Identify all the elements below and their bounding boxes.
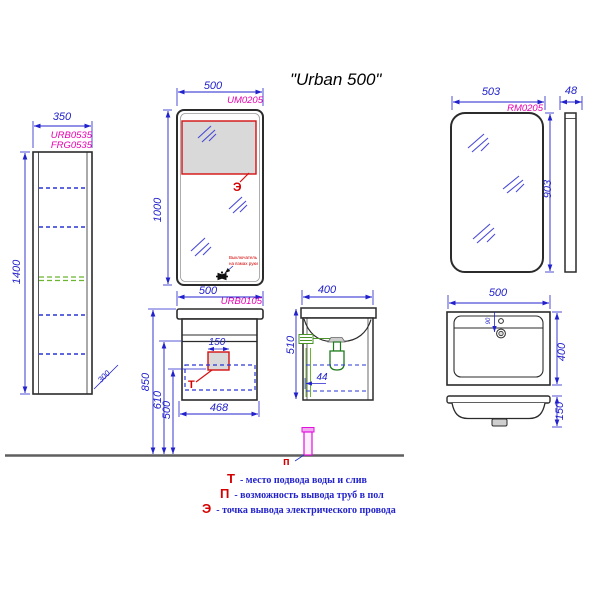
mirror-glass: [451, 113, 543, 272]
dim-side-height: 510: [285, 315, 297, 375]
water-supply-marker: Т: [188, 379, 195, 391]
dim-round-mirror-depth: 48: [556, 85, 586, 97]
sensor-note-line1: Выключатель: [229, 255, 257, 260]
dim-basin-depth: 400: [556, 322, 568, 382]
basin-top-outline: [177, 309, 263, 319]
dim-mirror-height: 1000: [152, 180, 164, 240]
round-mirror-drawing: [451, 96, 582, 272]
dim-side-pipe-offset: 44: [311, 372, 333, 383]
light-panel: [182, 121, 256, 174]
legend-pipes-symbol: П: [220, 486, 229, 501]
sensor-note-line2: на взмах руки: [229, 261, 258, 266]
legend-water-symbol: Т: [227, 471, 235, 486]
dim-basin-faucet-offset: 90: [486, 306, 492, 336]
dim-round-mirror-width: 503: [471, 86, 511, 98]
legend-electric: Э- точка вывода электрического провода: [202, 500, 396, 518]
dim-vanity-body-width: 468: [199, 402, 239, 414]
dim-basin-apron-height: 150: [554, 381, 566, 441]
legend-electric-symbol: Э: [202, 501, 211, 516]
dim-vanity-height-total: 850: [140, 352, 152, 412]
code-tall-cabinet-2: FRG0535: [42, 140, 92, 151]
mirror-side-profile: [565, 113, 576, 272]
vanity-side-drawing: [296, 290, 376, 400]
technical-drawing-sheet: "Urban 500" 350 1400 300 URB0535 FRG0535…: [0, 0, 600, 600]
basin-drawing: [447, 295, 562, 427]
overflow-hole: [499, 319, 504, 324]
legend-electric-text: - точка вывода электрического провода: [216, 505, 395, 516]
dim-cabinet-width: 350: [42, 111, 82, 123]
floor-pipe-marker: п: [283, 456, 290, 468]
dim-round-mirror-height: 903: [542, 159, 554, 219]
sheet-title: "Urban 500": [290, 70, 381, 90]
plumbing-cutout: [208, 352, 229, 370]
dim-cabinet-height: 1400: [11, 242, 23, 302]
tall-cabinet-drawing: [20, 121, 118, 394]
code-mirror-front: UM0205: [213, 95, 263, 106]
code-round-mirror: RM0205: [493, 103, 543, 114]
dim-vanity-height-bottom: 500: [161, 380, 173, 440]
dim-mirror-width: 500: [193, 80, 233, 92]
dim-basin-width: 500: [478, 287, 518, 299]
drain-outlet: [492, 419, 507, 426]
dim-vanity-cutout: 150: [197, 337, 237, 348]
code-vanity: URB0105: [212, 296, 262, 307]
dim-side-depth: 400: [307, 284, 347, 296]
electric-outlet-marker: Э: [233, 180, 242, 194]
